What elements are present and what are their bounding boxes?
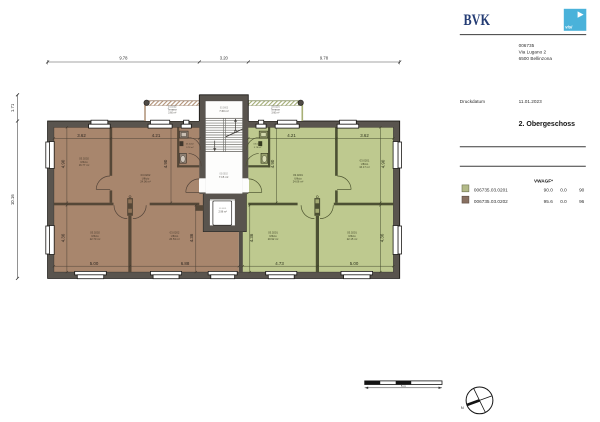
svg-text:4.36: 4.36 (249, 233, 254, 242)
svg-text:4.90: 4.90 (60, 159, 65, 168)
svg-text:4.90: 4.90 (270, 159, 275, 168)
svg-text:6.88: 6.88 (181, 261, 190, 266)
svg-text:4.90: 4.90 (163, 159, 168, 168)
svg-text:5 m: 5 m (401, 384, 407, 388)
svg-text:1.71: 1.71 (10, 103, 15, 112)
svg-text:03.0202: 03.0202 (186, 144, 195, 146)
svg-text:9.78: 9.78 (320, 56, 329, 61)
svg-text:03.0201: 03.0201 (254, 144, 263, 146)
svg-text:16.77 m²: 16.77 m² (79, 163, 90, 167)
svg-text:4.21: 4.21 (287, 133, 296, 138)
svg-text:22.70 m²: 22.70 m² (90, 237, 101, 241)
svg-text:4.36: 4.36 (189, 233, 194, 242)
svg-text:VWAGF*: VWAGF* (534, 178, 553, 183)
svg-text:4.90: 4.90 (380, 159, 385, 168)
svg-text:7.15 m²: 7.15 m² (219, 175, 229, 179)
svg-text:5.00: 5.00 (350, 261, 359, 266)
svg-text:4.36: 4.36 (60, 233, 65, 242)
svg-text:03.0001: 03.0001 (219, 208, 227, 210)
svg-text:Druckdatum: Druckdatum (460, 99, 485, 104)
svg-text:3.60 m²: 3.60 m² (168, 111, 176, 114)
svg-text:0.0: 0.0 (560, 188, 567, 193)
svg-text:6500 Bellinzona: 6500 Bellinzona (519, 56, 553, 61)
svg-text:2.96 m²: 2.96 m² (218, 211, 227, 214)
svg-text:006735: 006735 (519, 43, 535, 48)
svg-text:006735.03.0202: 006735.03.0202 (474, 199, 508, 204)
svg-text:Via Lugano 2: Via Lugano 2 (519, 49, 547, 54)
svg-text:24.06 m²: 24.06 m² (140, 180, 151, 184)
svg-text:N: N (461, 406, 464, 410)
svg-text:11.01.2023: 11.01.2023 (519, 99, 543, 104)
svg-text:0.0: 0.0 (560, 199, 567, 204)
svg-text:visi: visi (565, 24, 573, 29)
svg-text:3.62: 3.62 (77, 133, 86, 138)
svg-text:96: 96 (579, 199, 585, 204)
svg-text:10.16: 10.16 (10, 194, 15, 205)
svg-text:20.92 m²: 20.92 m² (268, 237, 279, 241)
svg-text:006735.03.0201: 006735.03.0201 (474, 188, 508, 193)
svg-text:4.73: 4.73 (275, 261, 284, 266)
svg-text:7.60 m²: 7.60 m² (219, 109, 229, 113)
svg-text:3.62: 3.62 (360, 133, 369, 138)
svg-text:4.36: 4.36 (380, 233, 385, 242)
svg-text:22.15 m²: 22.15 m² (347, 237, 358, 241)
svg-text:26.53 m²: 26.53 m² (169, 237, 180, 241)
svg-text:3.78 m²: 3.78 m² (186, 146, 194, 149)
svg-text:5.00: 5.00 (90, 261, 99, 266)
svg-text:3.20: 3.20 (220, 56, 229, 61)
svg-text:24.06 m²: 24.06 m² (293, 180, 304, 184)
svg-text:2. Obergeschoss: 2. Obergeschoss (519, 119, 576, 128)
svg-text:4.21: 4.21 (152, 133, 161, 138)
svg-text:9.78: 9.78 (119, 56, 128, 61)
svg-text:90.0: 90.0 (544, 188, 554, 193)
svg-text:BVK: BVK (464, 12, 491, 29)
svg-text:3.60 m²: 3.60 m² (271, 111, 279, 114)
svg-text:90: 90 (579, 188, 585, 193)
svg-text:16.17 m²: 16.17 m² (359, 165, 370, 169)
svg-text:95.6: 95.6 (544, 199, 554, 204)
svg-text:3.78 m²: 3.78 m² (254, 146, 262, 149)
